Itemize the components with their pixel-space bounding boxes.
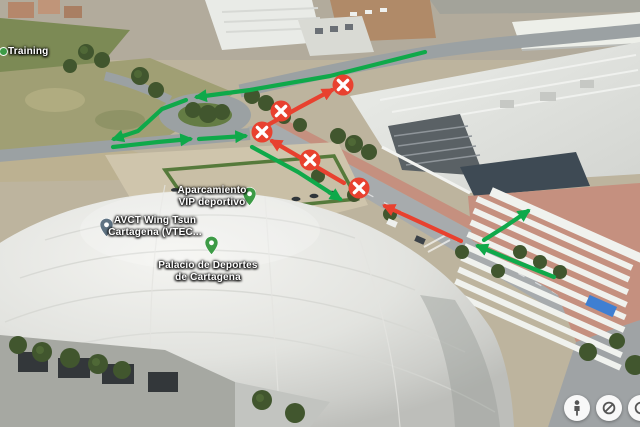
map-controls	[564, 395, 632, 421]
no-entry-marker	[300, 150, 321, 171]
pegman-button[interactable]	[564, 395, 590, 421]
map-label-avct-wing-tsun[interactable]: AVCT Wing TsunCartagena (VTEC...	[108, 215, 202, 239]
route-arrow-green-top-westbound	[197, 52, 425, 97]
pegman-icon	[570, 400, 584, 416]
map-label-aparcamiento-vip[interactable]: AparcamientoVIP deportivo	[177, 185, 246, 209]
route-arrow-red-lower-northwest	[385, 206, 461, 241]
route-arrow-green-lower-eastbound-2	[199, 136, 245, 139]
map-viewport[interactable]: TrainingAparcamientoVIP deportivoAVCT Wi…	[0, 0, 640, 427]
map-label-palacio-deportes[interactable]: Palacio de Deportesde Cartagena	[158, 260, 257, 284]
route-arrow-green-avenue-northwest	[478, 246, 554, 277]
no-entry-marker	[271, 101, 292, 122]
partial-icon	[633, 400, 640, 416]
compass-icon	[601, 400, 617, 416]
no-entry-marker	[333, 75, 354, 96]
no-entry-marker	[252, 122, 273, 143]
route-arrow-green-roundabout-west-exit	[114, 100, 186, 139]
map-pin-palacio-deportes[interactable]	[205, 236, 218, 255]
partial-control-button[interactable]	[628, 395, 640, 421]
no-entry-marker	[349, 178, 370, 199]
compass-button[interactable]	[596, 395, 622, 421]
poi-icon-training[interactable]	[0, 47, 8, 56]
map-label-training[interactable]: Training	[8, 46, 49, 58]
route-arrow-green-market-entry	[484, 211, 528, 240]
annotation-overlay	[0, 0, 640, 427]
route-arrow-green-lower-eastbound-1	[113, 139, 190, 147]
